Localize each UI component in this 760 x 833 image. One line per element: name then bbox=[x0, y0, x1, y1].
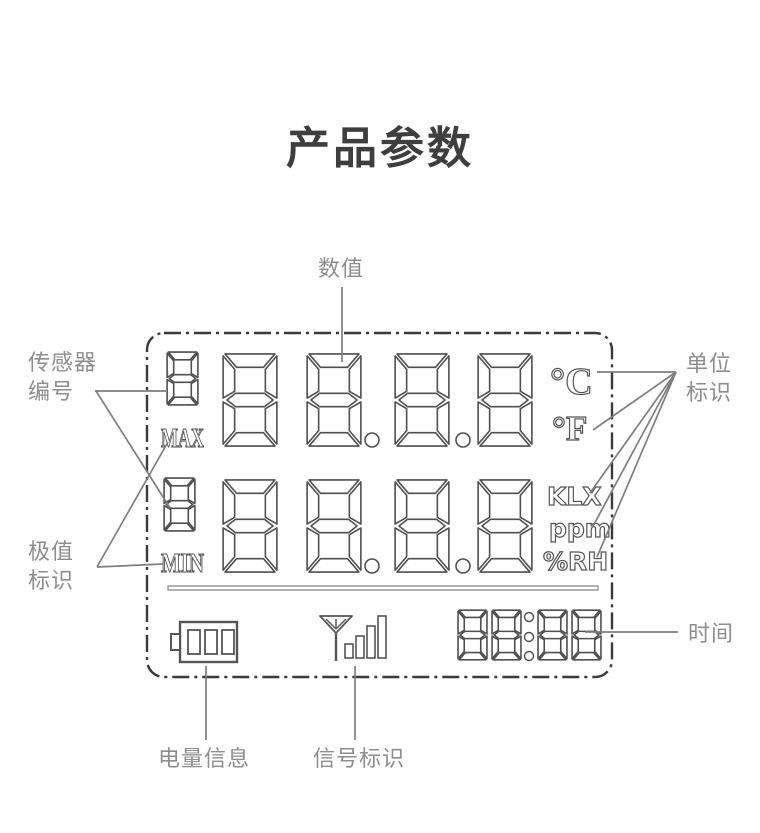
time-annotation-label: 时间 bbox=[688, 619, 734, 648]
signal-annotation-label: 信号标识 bbox=[313, 744, 405, 773]
value-annotation-label: 数值 bbox=[318, 254, 364, 283]
sensor-id-annotation-label: 传感器 编号 bbox=[28, 348, 97, 406]
extreme-annotation-label: 极值 标识 bbox=[28, 537, 74, 595]
unit-klx: KLX bbox=[547, 482, 602, 511]
battery-annotation-label: 电量信息 bbox=[158, 744, 250, 773]
unit-annotation-label: 单位 标识 bbox=[686, 349, 732, 407]
unit-ppm: ppm bbox=[549, 514, 611, 543]
unit-celsius: °C bbox=[550, 361, 593, 403]
lcd-divider bbox=[168, 586, 598, 590]
sensor-id-digit-top bbox=[167, 352, 198, 405]
unit-rh: %RH bbox=[543, 547, 608, 576]
battery-icon bbox=[171, 622, 237, 662]
clock-display bbox=[458, 610, 601, 660]
min-indicator: MIN bbox=[161, 548, 204, 578]
unit-fahrenheit: °F bbox=[552, 409, 587, 448]
max-indicator: MAX bbox=[161, 423, 204, 453]
lcd-diagram: MAX °C °F MIN KLX ppm %RH bbox=[0, 0, 760, 833]
